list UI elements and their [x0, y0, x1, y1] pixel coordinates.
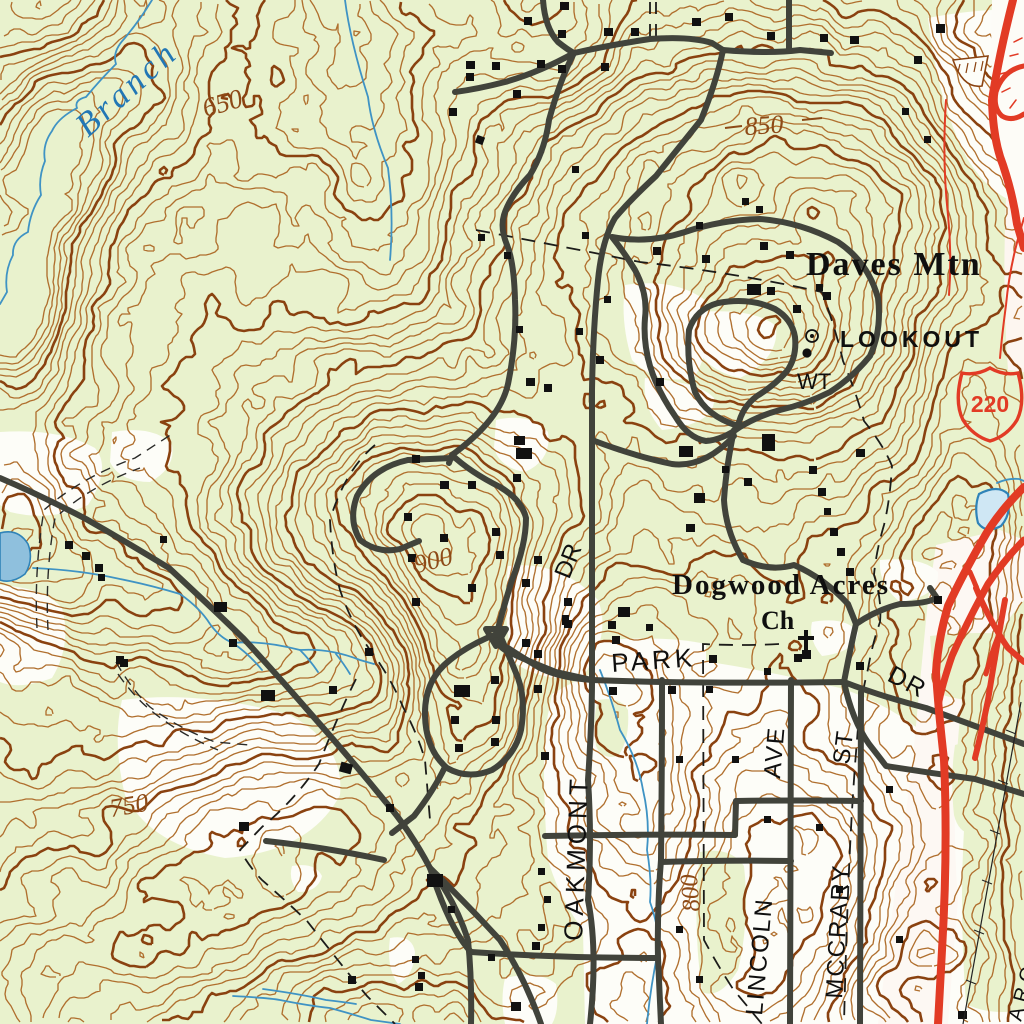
- svg-text:LOOKOUT: LOOKOUT: [840, 326, 983, 352]
- svg-text:WT: WT: [797, 369, 831, 394]
- svg-text:OAKMONT: OAKMONT: [558, 774, 594, 941]
- svg-text:PARK: PARK: [610, 642, 697, 678]
- svg-text:AVE: AVE: [759, 725, 790, 779]
- svg-text:Dogwood Acres: Dogwood Acres: [672, 569, 890, 601]
- svg-text:Daves Mtn: Daves Mtn: [806, 246, 982, 283]
- svg-text:Ch: Ch: [761, 606, 795, 635]
- svg-text:800: 800: [676, 873, 706, 913]
- svg-text:850: 850: [743, 109, 784, 141]
- svg-text:220: 220: [971, 391, 1009, 417]
- svg-text:ST: ST: [828, 728, 859, 766]
